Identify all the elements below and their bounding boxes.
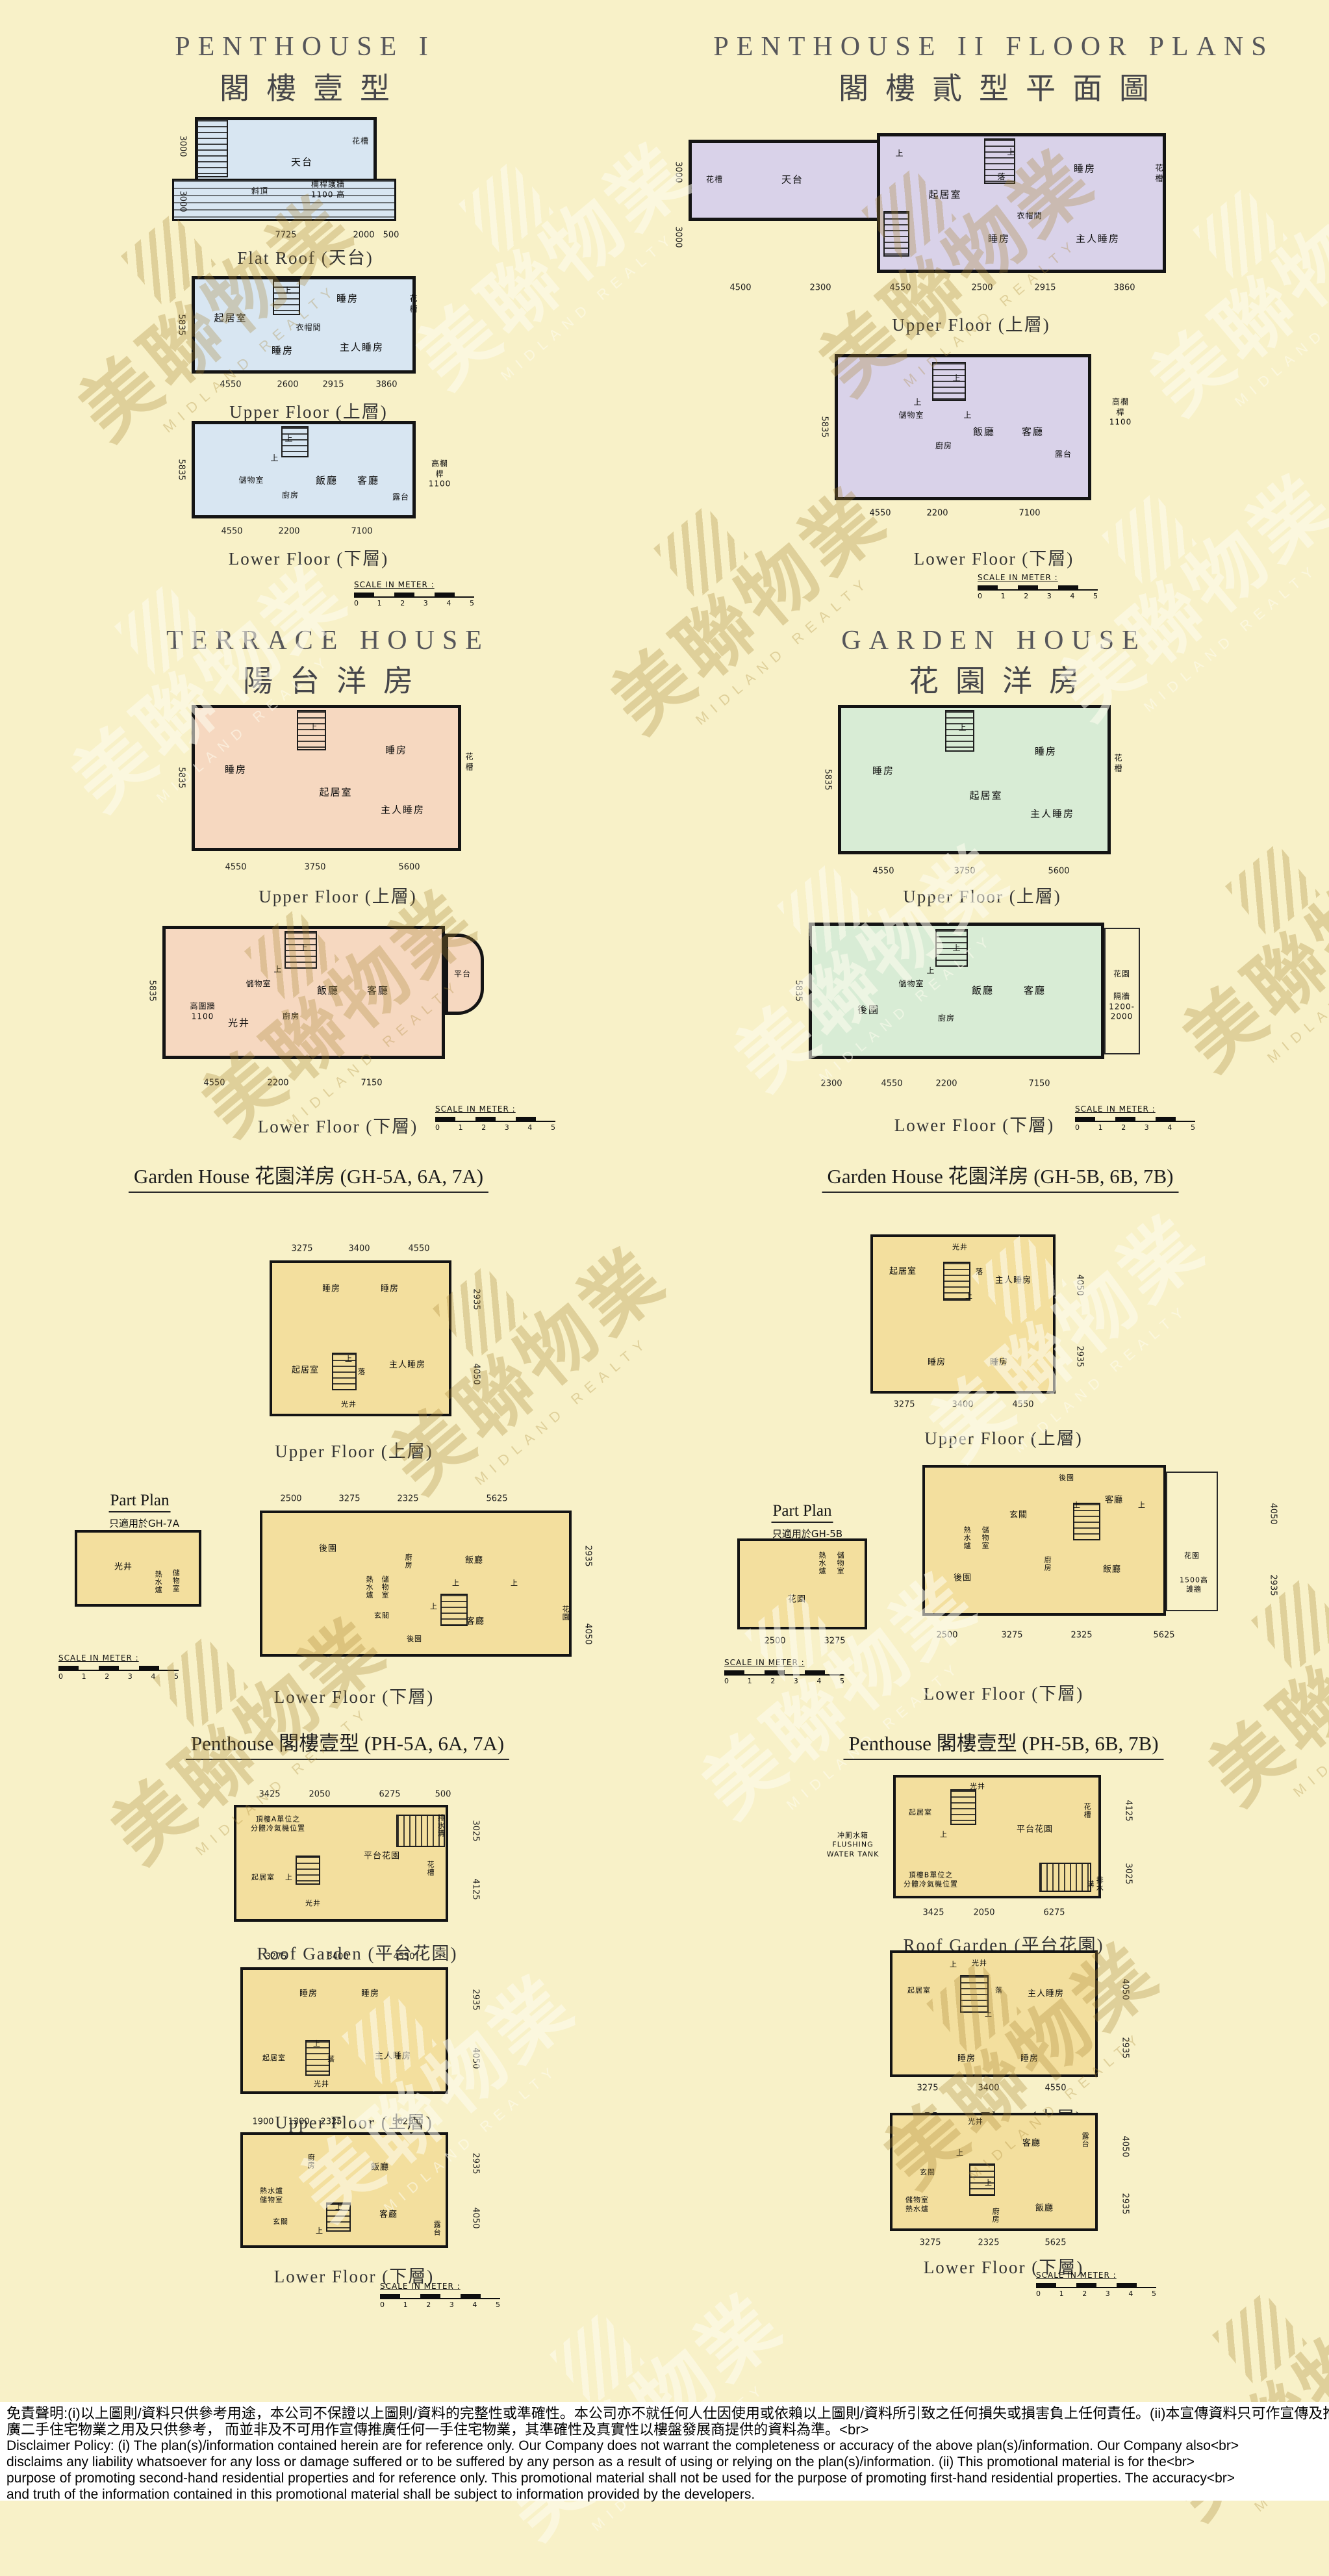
tick: 2: [481, 1123, 486, 1132]
room-label: 儲物室: [898, 411, 924, 421]
room-label: 主人睡房: [340, 341, 384, 354]
dim-label: 3400: [952, 1400, 973, 1410]
scale-label: SCALE IN METER :: [58, 1653, 179, 1663]
tick: 4: [151, 1672, 155, 1681]
room-label: 欄桿護牆 1100 高: [311, 179, 345, 199]
room-label: 上: [309, 722, 318, 733]
room-label: 上: [1007, 147, 1015, 158]
room-label: 客廳: [367, 984, 389, 997]
room-label: 睡房: [988, 233, 1010, 246]
room-label: 主人睡房: [389, 1360, 425, 1371]
dim-label: 5835: [177, 459, 186, 480]
dim-label: 4050: [471, 2047, 481, 2069]
room-label: 後園: [1059, 1473, 1074, 1483]
dim-label: 2500: [936, 1631, 957, 1640]
scale-label: SCALE IN METER :: [354, 580, 474, 589]
room-label: 衣帽間: [296, 323, 321, 333]
plan-fill: [240, 1967, 448, 2094]
room-label: 廚房: [991, 2208, 1000, 2223]
dim-label: 7100: [351, 527, 372, 537]
watermark-zh: 美聯物業: [396, 124, 715, 408]
scale-bar: SCALE IN METER : 012345: [58, 1653, 179, 1681]
tick: 5: [470, 599, 474, 607]
room-label: 廚房: [935, 441, 952, 452]
plan-caption: Upper Floor (上層): [903, 882, 1061, 908]
room-label: 主人睡房: [1076, 233, 1120, 246]
dim-label: 4550: [221, 527, 242, 537]
tick: 5: [174, 1672, 179, 1681]
room-label: 上: [913, 398, 922, 408]
tick: 3: [1145, 1123, 1149, 1132]
stairs-icon: [883, 211, 909, 257]
dim-label: 4550: [203, 1078, 225, 1088]
room-label: 斜頂: [251, 186, 268, 197]
dim-label: 3000: [178, 190, 188, 212]
room-label: 光井: [314, 2080, 329, 2089]
plan-caption: Roof Garden (平台花園): [257, 1939, 458, 1965]
gh5b-upper-floor-plan: 起居室 光井 落 上 主人睡房 睡房 睡房 3275 3400 4550 405…: [870, 1234, 1062, 1403]
gh5a-upper-floor-plan: 睡房 睡房 起居室 上 落 主人睡房 光井 3275 3400 4550 293…: [270, 1260, 458, 1426]
room-label: 儲物室: [898, 979, 924, 989]
watermark-en: MIDLAND REALTY: [449, 187, 728, 426]
tick: 4: [1128, 2289, 1133, 2298]
room-label: 玄關: [1009, 1511, 1028, 1522]
gh5b-part-plan-title: Part Plan: [772, 1502, 833, 1523]
dim-label: 5625: [1153, 1631, 1174, 1640]
room-label: 儲物室: [980, 1526, 989, 1549]
scale-bar: SCALE IN METER : 012345: [1075, 1104, 1195, 1132]
room-label: 玄關: [374, 1611, 390, 1620]
plan-fill: [270, 1260, 451, 1416]
dim-label: 3400: [978, 2084, 999, 2093]
dim-label: 2935: [471, 1989, 481, 2010]
room-label: 光井: [968, 2117, 983, 2126]
room-label: 露台: [432, 2221, 441, 2236]
dim-label: 4500: [729, 283, 751, 293]
room-label: 儲物室: [380, 1575, 389, 1599]
dim-label: 4050: [471, 2207, 481, 2228]
garden-house-title-zh: 花園洋房: [909, 657, 1096, 700]
plan-caption: Lower Floor (下層): [258, 1112, 418, 1138]
dim-label: 2935: [1269, 1574, 1278, 1596]
room-label: 飯廳: [465, 1556, 483, 1567]
room-label: 上: [895, 149, 904, 159]
room-label: 儲物室: [246, 979, 271, 989]
room-label: 睡房: [990, 1358, 1008, 1369]
dim-label: 4550: [1044, 2084, 1066, 2093]
scale-bar: SCALE IN METER : 012345: [978, 573, 1098, 600]
terrace-band: [172, 179, 396, 221]
scale-label: SCALE IN METER :: [978, 573, 1098, 582]
dim-label: 4050: [1120, 1978, 1130, 2000]
ph5b-upper-floor-plan: 起居室 上 落 上 光井 主人睡房 睡房 睡房 3275 3400 4550 4…: [890, 1950, 1107, 2087]
dim-label: 4050: [1269, 1503, 1278, 1524]
tick: 2: [1024, 592, 1028, 600]
tick: 4: [1167, 1123, 1172, 1132]
room-label: 高欄桿 1100: [1109, 398, 1132, 428]
dim-label: 4550: [225, 863, 246, 873]
room-label: 儲物室: [835, 1551, 844, 1575]
room-label: 起居室: [889, 1267, 917, 1278]
room-label: 客廳: [357, 474, 379, 487]
dim-label: 4050: [1120, 2136, 1130, 2157]
room-label: 上: [985, 2178, 993, 2187]
room-label: 睡房: [336, 292, 359, 305]
watermark: 美聯物業 MIDLAND REALTY: [441, 2220, 819, 2576]
dim-label: 3275: [917, 2084, 938, 2093]
tick: 0: [435, 1123, 440, 1132]
dim-label: 500: [435, 1790, 451, 1800]
watermark-zh: 美聯物業: [1163, 806, 1329, 1090]
dim-label: 2000: [353, 231, 374, 240]
midland-logo-icon: [1225, 843, 1321, 938]
stairs-icon: [950, 1789, 976, 1825]
dim-label: 3025: [1124, 1863, 1133, 1884]
room-label: 飯廳: [371, 2163, 389, 2174]
gh5b-part-plan: 熱水爐 儲物室 花園 2500 3275: [737, 1538, 870, 1642]
dim-label: 3860: [375, 380, 397, 390]
tick: 0: [354, 599, 359, 607]
scale-bar: SCALE IN METER : 012345: [435, 1104, 555, 1132]
dim-label: 2935: [472, 1288, 481, 1310]
midland-logo-icon: [653, 505, 749, 600]
plan-fill: [877, 133, 1166, 273]
dim-label: 7725: [275, 231, 296, 240]
room-label: 廚房: [403, 1553, 412, 1569]
scale-ticks: 012345: [354, 599, 474, 607]
room-label: 睡房: [225, 763, 247, 776]
dim-label: 3275: [291, 1244, 312, 1254]
room-label: 玄關: [920, 2168, 935, 2177]
stairs-icon: [1039, 1863, 1091, 1892]
room-label: 飯廳: [1035, 2204, 1054, 2215]
dim-label: 4050: [1075, 1274, 1085, 1295]
room-label: 主人睡房: [381, 804, 425, 817]
gh5a-lower-floor-plan: 後園 廚房 飯廳 熱水爐 儲物室 玄關 客廳 後園 花園 上 上 上 2500 …: [260, 1511, 585, 1670]
room-label: 花槽: [465, 752, 474, 772]
dim-label: 500: [383, 231, 399, 240]
scale-bar: SCALE IN METER : 012345: [380, 2282, 500, 2309]
room-label: 排水溝: [1085, 1874, 1104, 1894]
room-label: 睡房: [299, 1989, 318, 2000]
dim-label: 2200: [935, 1079, 957, 1089]
room-label: 上: [952, 374, 961, 384]
tick: 5: [496, 2301, 500, 2309]
dim-label: 4125: [1124, 1800, 1133, 1821]
stairs-icon: [960, 1975, 989, 2013]
room-label: 1500高 護牆: [1180, 1576, 1208, 1595]
gh5a-section-title: Garden House 花園洋房 (GH-5A, 6A, 7A): [129, 1160, 488, 1193]
room-label: 客廳: [379, 2210, 398, 2221]
room-label: 花園: [561, 1605, 570, 1621]
plan-fill: [192, 705, 461, 851]
room-label: 飯廳: [317, 984, 339, 997]
dim-label: 4050: [583, 1623, 593, 1644]
tick: 3: [424, 599, 428, 607]
tick: 1: [1001, 592, 1006, 600]
room-label: 上: [940, 1830, 948, 1839]
penthouse1-title-en: PENTHOUSE I: [175, 31, 436, 62]
scale-label: SCALE IN METER :: [1075, 1104, 1195, 1114]
dim-label: 2915: [1034, 283, 1056, 293]
room-label: 花園: [1113, 969, 1130, 980]
room-label: 儲物室: [238, 476, 264, 486]
dim-label: 7150: [1028, 1079, 1050, 1089]
gh5a-part-plan-note: 只適用於GH-7A: [109, 1516, 179, 1530]
dim-label: 3425: [922, 1908, 944, 1918]
plan-fill: [890, 1950, 1098, 2077]
scale-ticks: 012345: [58, 1672, 179, 1681]
dim-label: 3750: [304, 863, 325, 873]
dim-label: 4550: [889, 283, 911, 293]
dim-label: 5625: [1044, 2238, 1066, 2248]
ph2-upper-floor-plan: 花槽 天台 上 起居室 落 上 睡房 花槽 衣帽間 睡房 主人睡房 4500 2…: [689, 133, 1169, 296]
scale-ticks: 012345: [435, 1123, 555, 1132]
tick: 2: [105, 1672, 109, 1681]
dim-label: 3275: [824, 1637, 845, 1646]
garden-strip: [1104, 928, 1140, 1054]
room-label: 冲厠水箱 FLUSHING WATER TANK: [827, 1831, 880, 1859]
dim-label: 2300: [809, 283, 831, 293]
dim-label: 2915: [322, 380, 344, 390]
room-label: 後園: [954, 1574, 972, 1585]
scale-label: SCALE IN METER :: [1036, 2271, 1156, 2280]
midland-logo-icon: [1102, 492, 1197, 587]
terrace-house-title-en: TERRACE HOUSE: [166, 625, 490, 656]
room-label: 睡房: [1035, 745, 1057, 758]
room-label: 主人睡房: [995, 1276, 1032, 1287]
room-label: 飯廳: [972, 984, 994, 997]
plan-caption: Flat Roof (天台): [237, 244, 373, 269]
room-label: 客廳: [1022, 2139, 1041, 2150]
room-label: 排水溝: [436, 1814, 445, 1837]
dim-label: 7150: [361, 1078, 382, 1088]
tick: 5: [840, 1677, 844, 1685]
tick: 5: [1191, 1123, 1195, 1132]
gh5a-part-plan-title: Part Plan: [109, 1492, 171, 1512]
tick: 2: [770, 1677, 775, 1685]
room-label: 睡房: [1074, 162, 1096, 175]
room-label: 高欄桿 1100: [429, 459, 451, 490]
watermark-en: MIDLAND REALTY: [1183, 213, 1329, 452]
dim-label: 4550: [220, 380, 241, 390]
room-label: 起居室: [262, 2054, 286, 2063]
stairs-icon: [935, 929, 968, 967]
room-label: 儲物室 熱水爐: [905, 2196, 929, 2215]
scale-bar-graphic: [58, 1666, 179, 1671]
dim-label: 3000: [674, 226, 683, 248]
stairs-icon: [332, 1353, 357, 1390]
midland-logo-icon: [1212, 2291, 1308, 2387]
room-label: 花槽: [408, 294, 420, 314]
dim-label: 6275: [379, 1790, 400, 1800]
room-label: 落: [327, 2055, 335, 2064]
room-label: 落: [997, 172, 1006, 183]
room-label: 上: [285, 1873, 293, 1882]
dim-label: 2200: [267, 1078, 288, 1088]
dim-label: 4550: [872, 867, 894, 876]
room-label: 睡房: [1020, 2054, 1039, 2065]
dim-label: 5835: [820, 416, 829, 437]
room-label: 起居室: [319, 786, 352, 799]
plan-caption: Upper Floor (上層): [892, 311, 1050, 336]
room-label: 花園: [788, 1595, 806, 1606]
gh5b-section-title: Garden House 花園洋房 (GH-5B, 6B, 7B): [822, 1160, 1179, 1193]
room-label: 上: [270, 453, 279, 464]
tick: 3: [1106, 2289, 1110, 2298]
room-label: 上: [952, 943, 961, 954]
dim-label: 6275: [1043, 1908, 1065, 1918]
scale-bar-graphic: [380, 2294, 500, 2299]
plan-fill: [922, 1465, 1166, 1616]
room-label: 花槽: [425, 1861, 435, 1876]
ph1-lower-floor-plan: 上 上 儲物室 廚房 飯廳 客廳 露台 高欄桿 1100 4550 2200 7…: [192, 421, 425, 551]
disclaimer-line: disclaims any liability whatsoever for a…: [6, 2454, 1323, 2470]
dim-label: 5835: [177, 314, 186, 335]
midland-logo-icon: [153, 1635, 249, 1731]
room-label: 上: [958, 723, 967, 733]
plan-fill: [870, 1234, 1056, 1394]
dim-label: 2325: [320, 2117, 342, 2127]
room-label: 上: [1073, 1501, 1081, 1510]
tick: 3: [794, 1677, 798, 1685]
room-label: 起居室: [214, 312, 247, 325]
room-label: 上: [313, 2039, 321, 2048]
room-label: 廚房: [283, 1012, 299, 1022]
dim-label: 5600: [398, 863, 420, 873]
penthouse1-title-zh: 閣樓壹型: [220, 65, 407, 108]
room-label: 上: [430, 1602, 438, 1611]
room-label: 花槽: [706, 175, 723, 185]
dim-label: 2050: [973, 1908, 994, 1918]
scale-bar-graphic: [1036, 2283, 1156, 2288]
scale-ticks: 012345: [978, 592, 1098, 600]
garden-upper-floor-plan: 睡房 上 睡房 花槽 起居室 主人睡房 4550 3750 5600 5835: [838, 705, 1124, 867]
room-label: 熱水爐: [153, 1570, 162, 1594]
dim-label: 3275: [265, 1952, 286, 1962]
room-label: 主人睡房: [1028, 1989, 1064, 2000]
room-label: 露台: [392, 492, 409, 503]
dim-label: 2325: [397, 1494, 418, 1504]
dim-label: 2325: [1070, 1631, 1092, 1640]
plan-caption: Lower Floor (下層): [894, 1111, 1054, 1136]
dim-label: 3275: [919, 2238, 941, 2248]
room-label: 睡房: [957, 2054, 976, 2065]
gh5a-part-plan: 光井 熱水爐 儲物室: [75, 1530, 205, 1611]
room-label: 廚房: [306, 2154, 315, 2169]
stairs-icon: [296, 1855, 320, 1885]
room-label: 上: [345, 1355, 353, 1364]
garden-lower-floor-plan: 後園 上 上 儲物室 飯廳 客廳 廚房 花園 隔牆 1200-2000 2300…: [809, 923, 1146, 1085]
tick: 0: [724, 1677, 729, 1685]
dim-label: 5835: [177, 767, 186, 788]
room-label: 客廳: [1024, 984, 1046, 997]
watermark-en: MIDLAND REALTY: [423, 1292, 702, 1530]
plan-fill: [75, 1530, 201, 1607]
room-label: 落: [976, 1268, 983, 1277]
plan-caption: Upper Floor (上層): [259, 882, 416, 908]
plan-caption: Upper Floor (上層): [229, 398, 387, 423]
dim-label: 7100: [1019, 509, 1040, 518]
dim-label: 2500: [971, 283, 993, 293]
room-label: 熱水爐 儲物室: [260, 2187, 283, 2206]
watermark: 美聯物業 MIDLAND REALTY: [1117, 752, 1329, 1108]
tick: 1: [377, 599, 382, 607]
scale-bar: SCALE IN METER : 012345: [354, 580, 474, 607]
room-label: 睡房: [272, 344, 294, 357]
room-label: 後園: [857, 1004, 880, 1017]
tick: 0: [1036, 2289, 1041, 2298]
room-label: 睡房: [385, 744, 407, 757]
tick: 1: [82, 1672, 86, 1681]
scale-ticks: 012345: [1075, 1123, 1195, 1132]
dim-label: 5600: [1048, 867, 1069, 876]
dim-label: 5835: [147, 980, 157, 1001]
terrace-house-title-zh: 陽台洋房: [243, 657, 430, 700]
scale-bar-graphic: [724, 1670, 844, 1676]
room-label: 客廳: [466, 1617, 485, 1628]
room-label: 落: [358, 1368, 366, 1377]
scale-bar: SCALE IN METER : 012345: [1036, 2271, 1156, 2298]
dim-label: 3025: [471, 1820, 481, 1841]
dim-label: 3275: [893, 1400, 915, 1410]
tick: 2: [400, 599, 405, 607]
room-label: 後園: [407, 1635, 422, 1644]
room-label: 衣帽間: [1017, 211, 1042, 222]
ph5b-section-title: Penthouse 閣樓壹型 (PH-5B, 6B, 7B): [843, 1727, 1163, 1760]
tick: 5: [551, 1123, 555, 1132]
disclaimer-line: 免責聲明:(i)以上圖則/資料只供參考用途，本公司不保證以上圖則/資料的完整性或…: [6, 2405, 1323, 2421]
tick: 1: [459, 1123, 463, 1132]
scale-bar-graphic: [978, 585, 1098, 591]
disclaimer-line: 廣二手住宅物業之用及只供參考， 而並非及不可用作宣傳推廣任何一手住宅物業，其準確…: [6, 2421, 1323, 2438]
tick: 3: [1047, 592, 1052, 600]
dim-label: 2200: [278, 527, 299, 537]
watermark-en: MIDLAND REALTY: [1215, 869, 1329, 1108]
room-label: 主人睡房: [375, 2052, 411, 2063]
dim-label: 1300: [288, 2117, 309, 2127]
room-label: 熱水爐: [962, 1526, 971, 1549]
room-label: 熱水爐: [817, 1551, 826, 1575]
dim-label: 5835: [794, 980, 804, 1001]
tick: 4: [816, 1677, 821, 1685]
disclaimer-line: Disclaimer Policy: (i) The plan(s)/infor…: [6, 2438, 1323, 2454]
room-label: 上: [283, 286, 292, 296]
scale-bar-graphic: [354, 593, 474, 598]
room-label: 起居室: [251, 1873, 275, 1882]
dim-label: 3000: [178, 135, 188, 157]
room-label: 光井: [952, 1243, 968, 1252]
room-label: 睡房: [381, 1284, 399, 1295]
dim-label: 2200: [926, 509, 948, 518]
room-label: 熱水爐: [364, 1575, 373, 1599]
room-label: 平台花園: [364, 1852, 400, 1863]
dim-label: 4125: [471, 1878, 481, 1900]
room-label: 花槽: [1082, 1803, 1091, 1818]
plan-fill: [737, 1538, 867, 1629]
dim-label: 2300: [820, 1079, 842, 1089]
scale-bar-graphic: [1075, 1117, 1195, 1122]
room-label: 上: [985, 2009, 993, 2019]
dim-label: 4550: [393, 1952, 414, 1962]
scale-ticks: 012345: [1036, 2289, 1156, 2298]
room-label: 平台: [454, 969, 471, 980]
room-label: 上: [950, 1960, 957, 1969]
dim-label: 2600: [277, 380, 298, 390]
scale-label: SCALE IN METER :: [724, 1658, 844, 1667]
room-label: 起居室: [969, 789, 1002, 802]
penthouse2-title-zh: 閣樓貳型平面圖: [839, 65, 1166, 108]
